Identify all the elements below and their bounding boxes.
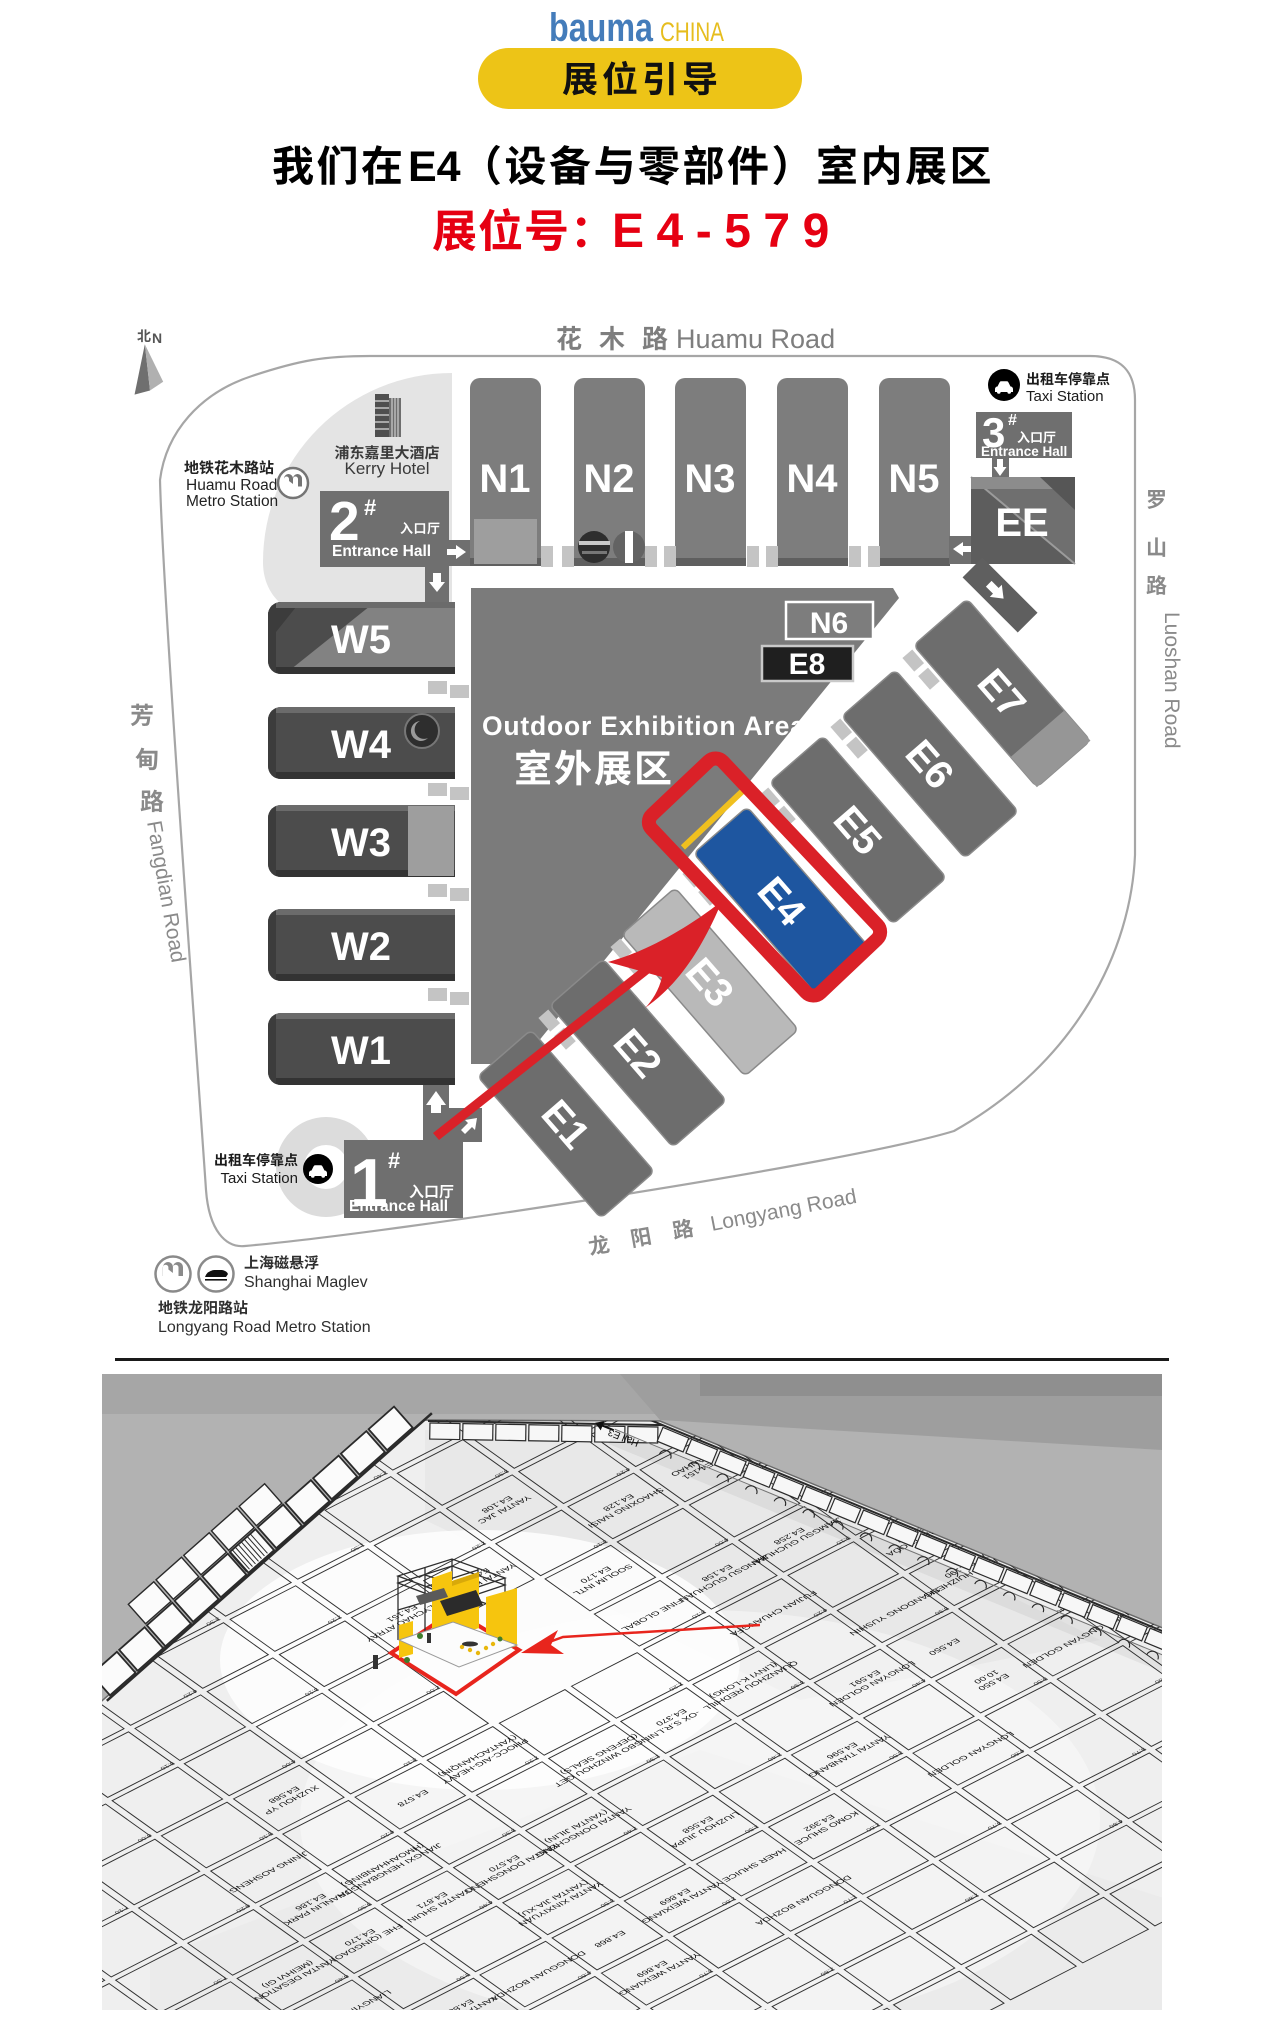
svg-text:6.80: 6.80: [1251, 1745, 1269, 1755]
svg-text:YANTAI JIWEI: YANTAI JIWEI: [1201, 1482, 1266, 1517]
svg-text:N3: N3: [684, 457, 735, 501]
svg-text:7.50: 7.50: [1175, 1602, 1193, 1612]
svg-text:N1: N1: [479, 457, 530, 501]
svg-text:8.40: 8.40: [804, 1248, 822, 1258]
svg-text:9.30: 9.30: [925, 1247, 943, 1257]
svg-text:10.20: 10.20: [1045, 1244, 1067, 1256]
svg-text:6.20: 6.20: [37, 1762, 55, 1772]
svg-text:6.40: 6.40: [660, 1322, 678, 1332]
svg-text:9.50: 9.50: [827, 1176, 845, 1186]
svg-text:W3: W3: [331, 821, 391, 865]
svg-text:Huamu Road: Huamu Road: [676, 324, 835, 354]
svg-text:9.10: 9.10: [1024, 1317, 1042, 1327]
svg-text:N2: N2: [583, 457, 634, 501]
svg-text:W1: W1: [331, 1029, 391, 1073]
svg-text:N: N: [152, 330, 162, 346]
svg-text:N5: N5: [888, 457, 939, 501]
svg-text:W5: W5: [331, 618, 391, 662]
svg-text:Taxi Station: Taxi Station: [1026, 388, 1104, 405]
svg-text:N6: N6: [810, 607, 848, 640]
svg-text:EE: EE: [995, 501, 1048, 545]
svg-text:5.30: 5.30: [59, 1690, 77, 1700]
svg-text:7.50: 7.50: [682, 1250, 700, 1260]
svg-text:Entrance Hall: Entrance Hall: [349, 1198, 448, 1215]
svg-text:10.00: 10.00: [1144, 1314, 1166, 1326]
svg-text:Longyang Road: Longyang Road: [709, 1185, 859, 1236]
svg-text:10.40: 10.40: [946, 1173, 968, 1185]
svg-text:Outdoor Exhibition Area: Outdoor Exhibition Area: [482, 711, 806, 741]
svg-text:7.70: 7.70: [1274, 1673, 1280, 1683]
svg-text:8.20: 8.20: [902, 1319, 920, 1329]
svg-text:N4: N4: [786, 457, 838, 501]
svg-text:W4: W4: [331, 723, 392, 767]
svg-text:E8: E8: [789, 648, 826, 681]
svg-text:9.30: 9.30: [1221, 1458, 1239, 1468]
svg-text:11.10: 11.10: [1265, 1313, 1280, 1325]
svg-text:5.50: 5.50: [538, 1324, 556, 1334]
svg-text:Huamu Road: Huamu Road: [186, 477, 277, 494]
svg-text:#: #: [364, 495, 376, 520]
svg-text:11.30: 11.30: [1068, 1172, 1089, 1184]
svg-text:E4-579: E4-579: [612, 205, 842, 258]
svg-text:11.10: 11.10: [1167, 1242, 1188, 1254]
svg-text:8.40: 8.40: [1198, 1530, 1216, 1540]
svg-text:7.10: 7.10: [14, 1834, 32, 1844]
svg-text:Metro Station: Metro Station: [186, 493, 278, 510]
svg-text:Longyang Road Metro Station: Longyang Road Metro Station: [158, 1319, 371, 1336]
svg-text:Entrance Hall: Entrance Hall: [981, 444, 1067, 459]
svg-text:W2: W2: [331, 925, 391, 969]
svg-text:7.30: 7.30: [781, 1321, 799, 1331]
svg-text:JILIN TEDY: JILIN TEDY: [1157, 1449, 1211, 1478]
svg-text:4.40: 4.40: [82, 1618, 100, 1628]
svg-text:10.20: 10.20: [1242, 1385, 1264, 1397]
svg-text:Luoshan Road: Luoshan Road: [1160, 612, 1183, 749]
svg-text:Taxi Station: Taxi Station: [220, 1170, 298, 1187]
svg-text:Kerry Hotel: Kerry Hotel: [344, 459, 429, 478]
svg-text:Entrance Hall: Entrance Hall: [332, 543, 431, 560]
svg-text:11.50: 11.50: [970, 1101, 991, 1113]
svg-text:#: #: [388, 1148, 400, 1173]
svg-text:#: #: [1008, 412, 1017, 429]
svg-text:E4: E4: [408, 143, 461, 191]
svg-text:Shanghai Maglev: Shanghai Maglev: [244, 1274, 368, 1291]
svg-text:CHINA: CHINA: [660, 17, 724, 47]
svg-text:bauma: bauma: [549, 6, 654, 50]
